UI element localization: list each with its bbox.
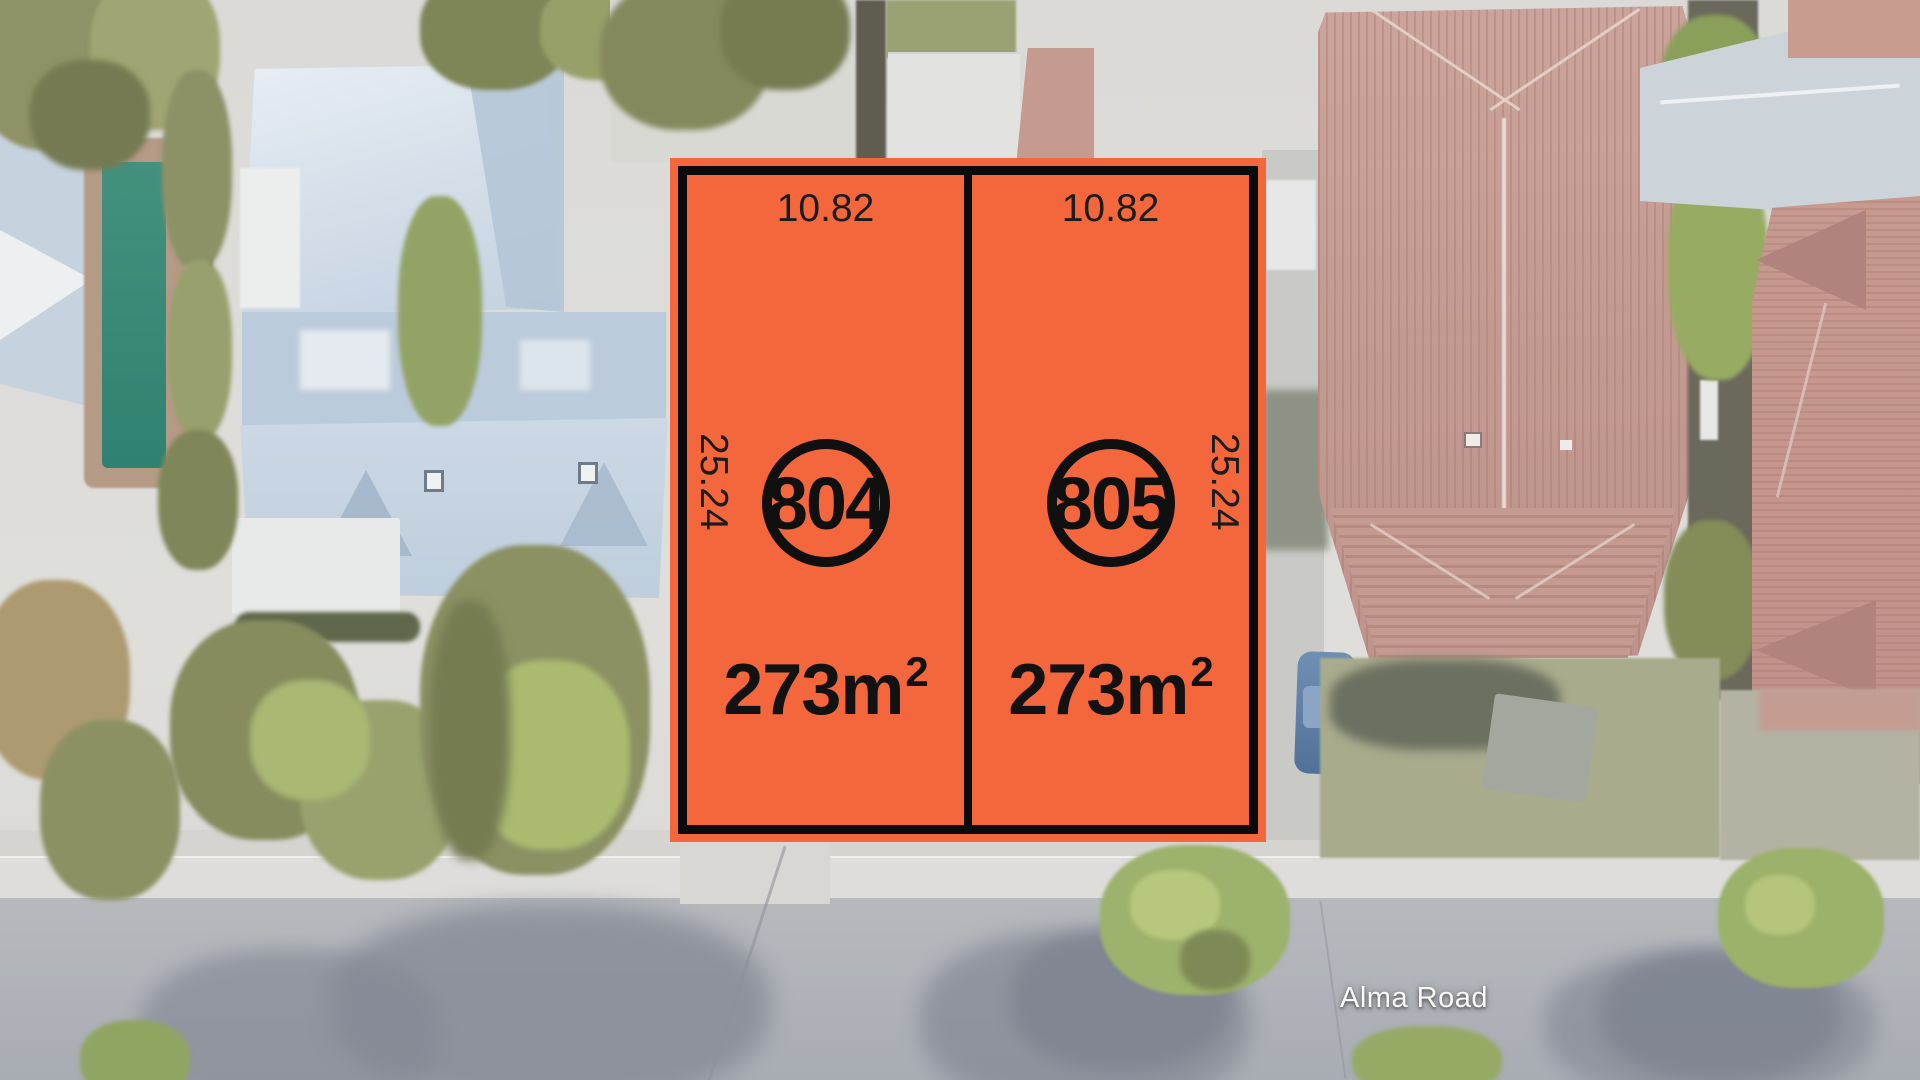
footpath [0,856,1920,904]
salmon-roof-corner [1788,0,1920,58]
tree-shadow-crevice [430,600,510,860]
lot-804-number: 804 [767,461,884,546]
tree [40,720,180,900]
road-shadow [330,905,770,1080]
superscript: 2 [905,648,927,695]
garage-roof [232,518,400,614]
lot-804-frontage-dimension: 10.82 [687,189,964,230]
chimney [1464,432,1482,448]
lot-805-number-badge: 805 [1047,439,1175,567]
tree [168,260,232,440]
road-name-label: Alma Road [1340,982,1488,1015]
shed-roof-grey [1640,30,1920,220]
swimming-pool [102,162,166,468]
salmon-roof-edge [1760,690,1920,730]
subdivision-plan-overlay: 10.82 25.24 804 273m2 10.82 25.24 805 27… [678,166,1258,834]
tree [80,1020,190,1080]
passage-path [1700,380,1718,440]
aerial-map: 10.82 25.24 804 273m2 10.82 25.24 805 27… [0,0,1920,1080]
roof-highlight [300,330,390,390]
lot-805-frontage-dimension: 10.82 [972,189,1249,230]
superscript: 2 [1190,648,1212,695]
tree [250,680,370,800]
street-tree-dark [1180,930,1250,990]
lot-804-number-badge: 804 [762,439,890,567]
lot-805-number: 805 [1052,461,1169,546]
red-roof-wedge [1016,48,1094,166]
chimney [578,462,598,484]
lot-804-area: 273m2 [687,651,964,726]
tree [158,430,238,570]
lot-805-depth-dimension: 25.24 [1203,433,1244,531]
chimney [424,470,444,492]
tree [162,70,232,270]
driveway-crossover [680,834,830,904]
fence-shadow [856,0,886,162]
street-tree [1352,1026,1502,1080]
tree [1664,520,1760,680]
left-house-wall [240,168,300,308]
lot-805: 10.82 25.24 805 273m2 [972,175,1249,825]
lot-804: 10.82 25.24 804 273m2 [687,175,972,825]
lawn-strip [886,0,1016,58]
tree [398,196,482,426]
roof-vent [1560,440,1572,450]
roof-highlight [520,340,590,390]
lot-805-area: 273m2 [972,651,1249,726]
roof-ridge-line [1502,118,1506,510]
tree [30,60,150,170]
white-garage-roof [888,52,1020,166]
driveway-highlight [1266,180,1316,270]
garden-shed [1482,693,1598,803]
lot-804-depth-dimension: 25.24 [692,433,733,531]
street-tree-highlight [1745,875,1815,935]
